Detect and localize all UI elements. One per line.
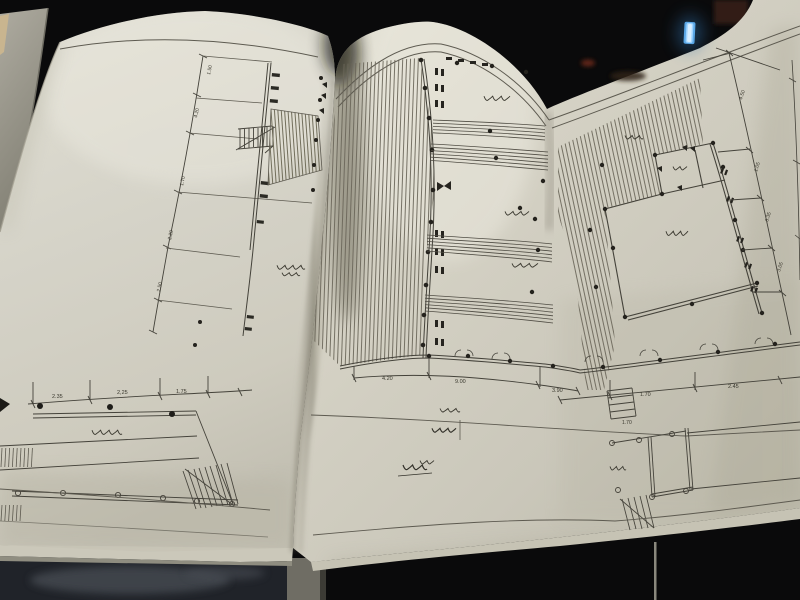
svg-text:2,25: 2,25 (117, 390, 128, 396)
svg-text:1.75: 1.75 (176, 389, 187, 395)
svg-text:1.70: 1.70 (622, 420, 632, 426)
svg-text:3.90: 3.90 (552, 388, 563, 394)
svg-text:2.45: 2.45 (728, 384, 739, 390)
svg-text:4.20: 4.20 (382, 376, 393, 382)
svg-text:9.00: 9.00 (455, 379, 466, 385)
svg-text:1.70: 1.70 (640, 392, 651, 398)
svg-text:2.35: 2.35 (52, 394, 63, 400)
